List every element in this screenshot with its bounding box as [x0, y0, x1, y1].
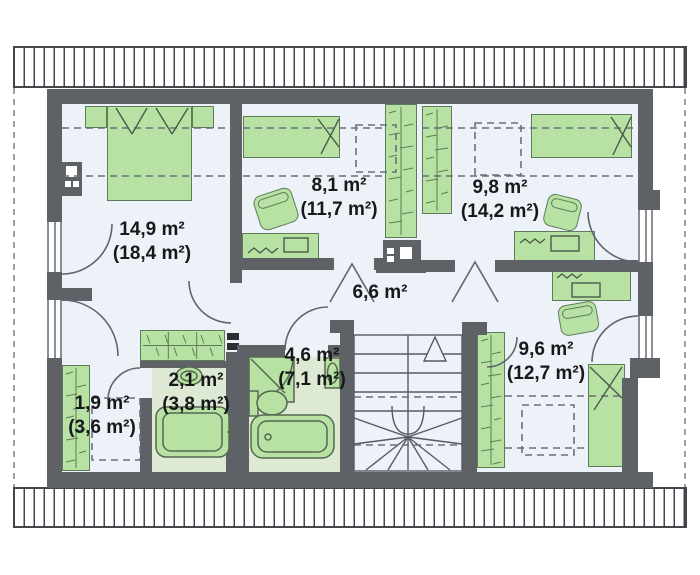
wall-segment	[47, 472, 653, 488]
wall-segment	[638, 190, 660, 210]
wardrobe	[140, 330, 225, 361]
wall-segment	[462, 322, 487, 335]
chimney-base	[376, 266, 426, 273]
wall-segment	[622, 378, 638, 472]
wall-segment	[495, 260, 638, 272]
area-value: 1,9 m²	[68, 392, 136, 416]
wall-segment	[462, 335, 477, 472]
chimney-flue	[400, 247, 412, 259]
room-area-label: 6,6 m²	[353, 281, 408, 305]
chimney-flue	[387, 248, 394, 254]
shelf-icon	[227, 333, 239, 340]
area-total: (7,1 m²)	[278, 368, 346, 392]
area-total: (3,6 m²)	[68, 416, 136, 440]
area-total: (12,7 m²)	[507, 362, 585, 386]
chimney-flue	[65, 181, 71, 187]
area-value: 6,6 m²	[353, 281, 408, 305]
wardrobe	[477, 332, 505, 468]
window	[638, 316, 653, 358]
room-area-label: 2,1 m² (3,8 m²)	[162, 369, 230, 417]
roof-edge-dashed-right	[684, 88, 686, 487]
wardrobe	[385, 104, 417, 238]
area-value: 9,8 m²	[461, 176, 539, 200]
room-area-label: 4,6 m² (7,1 m²)	[278, 344, 346, 392]
room-area-label: 9,6 m² (12,7 m²)	[507, 338, 585, 386]
wall-segment	[638, 262, 653, 318]
nightstand	[192, 106, 214, 128]
chimney-flue	[66, 166, 77, 177]
wall-segment	[242, 258, 334, 270]
area-total: (14,2 m²)	[461, 200, 539, 224]
nightstand	[85, 106, 107, 128]
single-bed	[588, 364, 625, 467]
room-area-label: 1,9 m² (3,6 m²)	[68, 392, 136, 440]
wall-segment	[47, 89, 653, 104]
wall-segment	[47, 272, 62, 300]
wall-segment	[230, 104, 242, 283]
chimney	[62, 162, 82, 196]
roof-edge-dashed-left	[13, 88, 15, 487]
window	[638, 210, 653, 262]
wall-segment	[630, 358, 660, 378]
room-area-label: 9,8 m² (14,2 m²)	[461, 176, 539, 224]
wardrobe	[422, 106, 452, 214]
area-value: 9,6 m²	[507, 338, 585, 362]
wall-segment	[47, 104, 62, 222]
area-total: (18,4 m²)	[113, 242, 191, 266]
area-value: 4,6 m²	[278, 344, 346, 368]
area-value: 2,1 m²	[162, 369, 230, 393]
wall-segment	[140, 361, 226, 368]
chimney-flue	[387, 256, 394, 262]
roof-hatch-top	[13, 46, 687, 88]
desk	[514, 231, 595, 261]
area-total: (11,7 m²)	[300, 198, 377, 222]
area-value: 14,9 m²	[113, 218, 191, 242]
window	[47, 222, 62, 272]
chimney-flue	[73, 181, 79, 187]
wall-segment	[330, 320, 354, 333]
chimney	[383, 240, 421, 266]
single-bed	[531, 114, 632, 158]
double-bed	[107, 106, 192, 201]
window	[47, 300, 62, 358]
wall-segment	[62, 288, 92, 301]
area-total: (3,8 m²)	[162, 393, 230, 417]
wall-segment	[140, 398, 152, 472]
desk	[552, 268, 631, 301]
single-bed	[243, 116, 340, 158]
roof-hatch-bottom	[13, 487, 687, 528]
wall-segment	[47, 358, 62, 472]
room-area-label: 8,1 m² (11,7 m²)	[300, 174, 377, 222]
area-value: 8,1 m²	[300, 174, 377, 198]
floor-plan: 14,9 m² (18,4 m²) 8,1 m² (11,7 m²) 9,8 m…	[0, 0, 700, 575]
room-area-label: 14,9 m² (18,4 m²)	[113, 218, 191, 266]
